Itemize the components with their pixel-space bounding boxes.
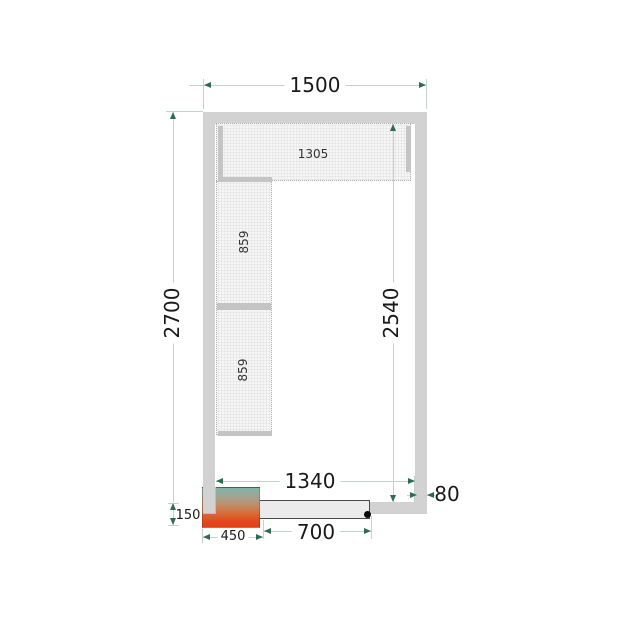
dim-1500-ext-right: [426, 79, 427, 109]
door-hinge-dot-icon: [364, 511, 371, 518]
dim-2540-label: 2540: [380, 283, 402, 344]
shelf-top-right-support: [406, 126, 411, 172]
dim-1500-arrow-left-icon: [204, 82, 211, 88]
shelf-left-middle-support: [217, 303, 271, 310]
dim-80-arrow-left-icon: [410, 492, 417, 498]
shelf-left-label-1: 859: [237, 231, 251, 254]
dim-450-arrow-left-icon: [203, 534, 210, 540]
dim-150-serif-bottom: [168, 525, 179, 526]
wall-left: [203, 112, 215, 514]
dim-2540-arrow-bottom-icon: [390, 495, 396, 502]
dim-450-arrow-right-icon: [256, 534, 263, 540]
wall-bottom-right-segment: [370, 502, 415, 514]
dim-450-label: 450: [218, 530, 249, 544]
dim-1500-arrow-right-icon: [419, 82, 426, 88]
shelf-left-bottom-support: [218, 431, 272, 436]
dim-150-label: 150: [173, 509, 204, 523]
dim-700-arrow-right-icon: [364, 528, 371, 534]
dim-700-arrow-left-icon: [264, 528, 271, 534]
dim-1340-arrow-left-icon: [216, 478, 223, 484]
wall-right: [415, 112, 427, 514]
door-panel: [259, 500, 370, 519]
dim-2540-arrow-top-icon: [390, 124, 396, 131]
dim-1340-label: 1340: [280, 470, 341, 492]
dim-80-label: 80: [429, 483, 464, 505]
dim-700-ext-right: [371, 516, 372, 539]
dim-1340-arrow-right-icon: [408, 478, 415, 484]
dim-2700-label: 2700: [161, 283, 183, 344]
cold-room-plan: 1305 859 859 1500 2700 150 2540 1340 80 …: [0, 0, 625, 625]
shelf-left-label-2: 859: [236, 359, 250, 382]
dim-1500-label: 1500: [285, 74, 346, 96]
shelf-top-label: 1305: [298, 147, 329, 161]
wall-left-stub-over-unit: [203, 487, 216, 514]
dim-700-label: 700: [292, 521, 340, 543]
shelf-top-left-support: [218, 126, 223, 178]
dim-2700-arrow-top-icon: [170, 112, 176, 119]
shelf-left-top-support: [218, 177, 272, 182]
